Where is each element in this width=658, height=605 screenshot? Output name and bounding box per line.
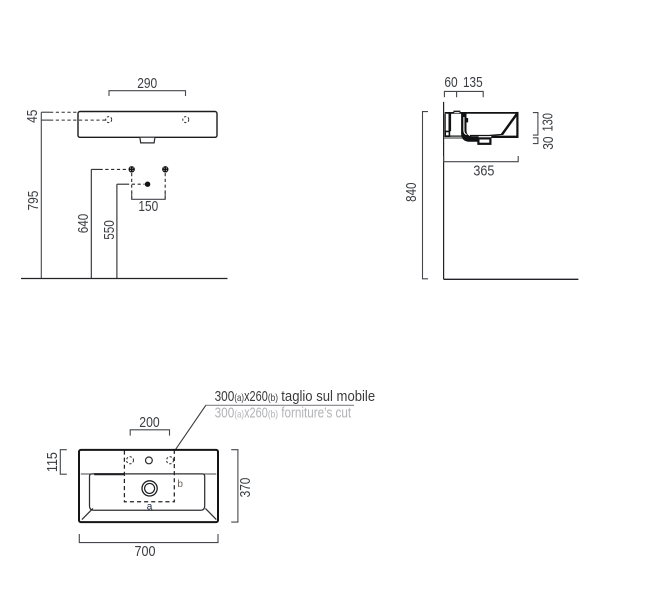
svg-text:370: 370 — [237, 478, 254, 498]
svg-text:840: 840 — [403, 183, 420, 202]
svg-text:forniture’s cut: forniture’s cut — [281, 404, 351, 421]
svg-text:795: 795 — [25, 191, 42, 211]
svg-text:550: 550 — [101, 220, 118, 240]
svg-text:60: 60 — [444, 74, 457, 91]
svg-text:700: 700 — [135, 543, 156, 560]
svg-text:x260: x260 — [244, 388, 268, 405]
svg-text:365: 365 — [473, 163, 494, 180]
svg-text:290: 290 — [137, 75, 157, 92]
svg-text:a: a — [147, 501, 153, 512]
svg-text:130: 130 — [540, 113, 557, 132]
svg-text:(a): (a) — [234, 392, 244, 404]
svg-text:115: 115 — [44, 452, 61, 472]
svg-text:taglio sul mobile: taglio sul mobile — [281, 388, 375, 405]
svg-text:300: 300 — [215, 404, 235, 421]
svg-text:640: 640 — [75, 214, 92, 233]
svg-text:30: 30 — [540, 136, 557, 149]
svg-text:200: 200 — [139, 414, 159, 431]
svg-text:300: 300 — [215, 388, 235, 405]
svg-text:(a): (a) — [234, 408, 244, 420]
svg-text:(b): (b) — [268, 408, 278, 420]
svg-text:45: 45 — [24, 110, 41, 123]
svg-text:x260: x260 — [244, 404, 268, 421]
svg-text:150: 150 — [138, 198, 158, 215]
svg-text:135: 135 — [463, 74, 483, 91]
svg-text:b: b — [177, 479, 183, 490]
svg-text:(b): (b) — [268, 392, 278, 404]
